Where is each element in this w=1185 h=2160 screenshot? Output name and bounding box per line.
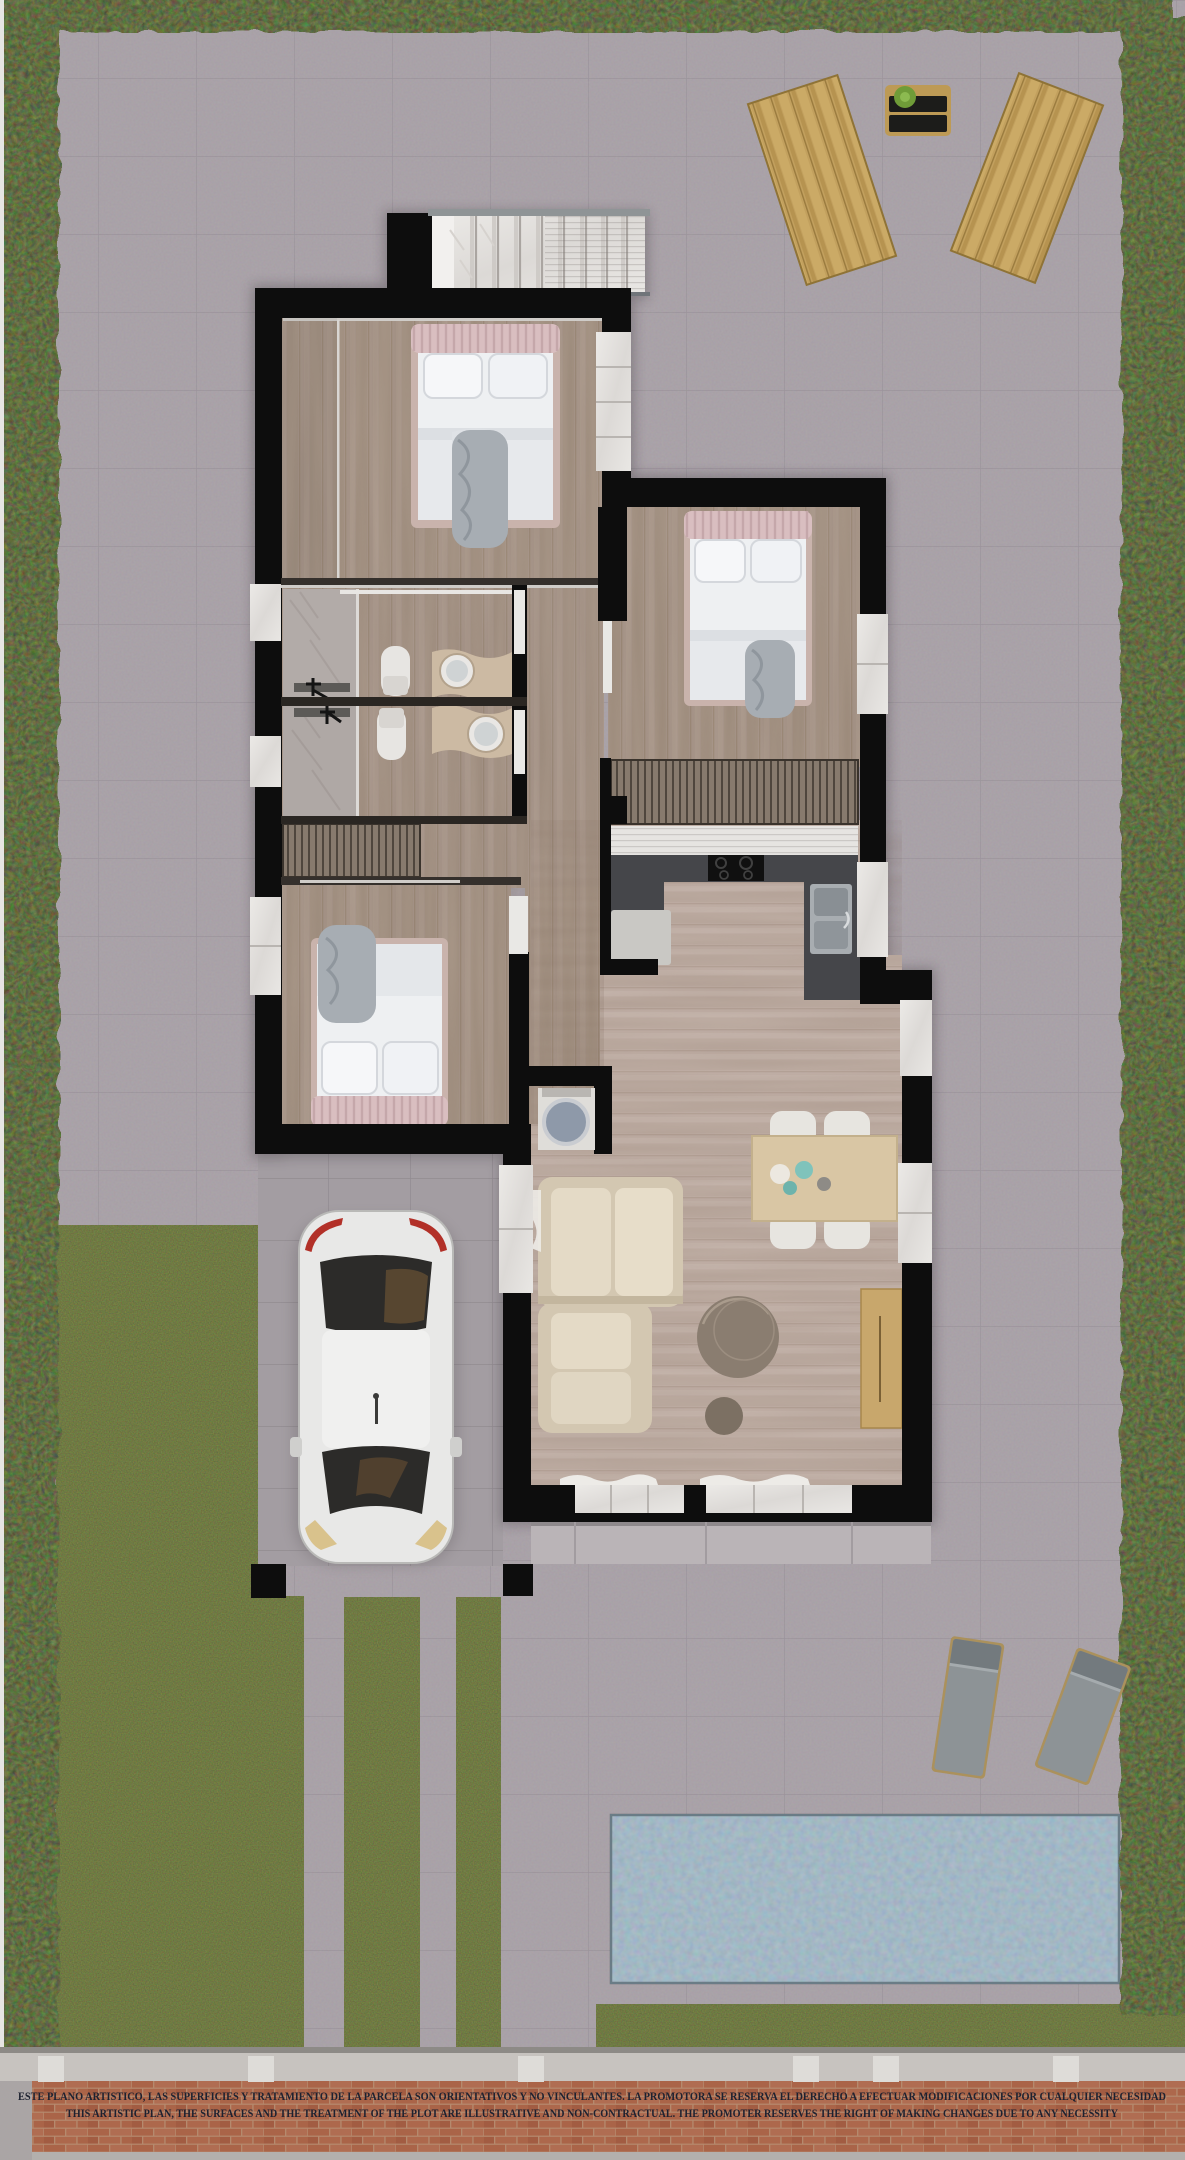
svg-text:ESTE PLANO ARTISTICO, LAS SUPE: ESTE PLANO ARTISTICO, LAS SUPERFICIES Y … [18,2091,1166,2103]
svg-text:THIS ARTISTIC PLAN, THE SURFAC: THIS ARTISTIC PLAN, THE SURFACES AND THE… [66,2108,1118,2120]
